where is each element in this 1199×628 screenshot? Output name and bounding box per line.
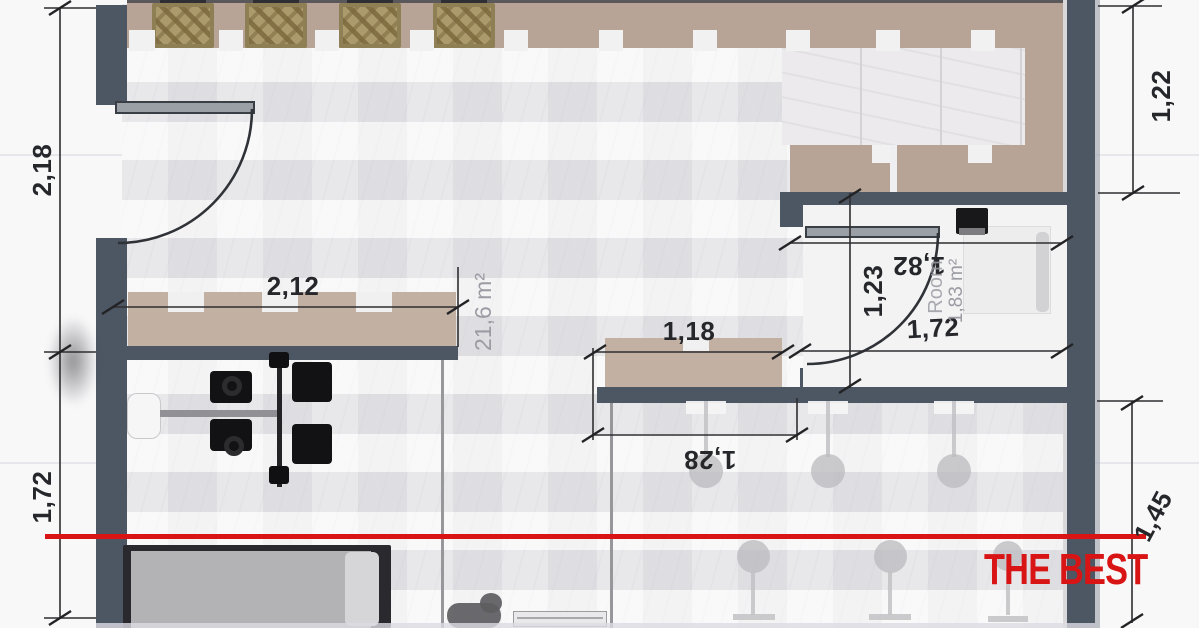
stool-stem: [888, 571, 892, 615]
bottom-floor-edge: [96, 623, 1095, 628]
chair-tab: [786, 30, 810, 51]
floor-plan: THE BEST 2,18 1,72 2,12 1,18 1,28 1,82 1…: [0, 0, 1199, 628]
stool-base: [733, 614, 775, 620]
weight-plate-block: [292, 424, 332, 464]
sideboard-back-wall: [122, 346, 458, 360]
terrace-chair-tab: [968, 145, 992, 163]
wall-shadow: [48, 316, 98, 406]
stool-seat: [737, 540, 770, 573]
wc-room-area-label: 1,83 m²: [942, 251, 972, 331]
terrace-bottom-wall: [780, 192, 1095, 205]
patterned-rug-chair: [245, 3, 307, 48]
dim-wc-height: 1,23: [858, 249, 888, 333]
left-wall-upper: [96, 5, 127, 105]
patterned-rug-chair: [339, 3, 401, 48]
barbell-end-cap: [269, 466, 289, 484]
stool-stem: [751, 571, 755, 615]
chair-tab: [129, 30, 155, 51]
stool-base: [988, 616, 1028, 622]
chair-tab: [410, 30, 434, 51]
dim-center-counter: 1,18: [647, 316, 731, 346]
stool-stem: [826, 401, 830, 457]
terrace-table-top: [782, 48, 1025, 145]
low-bench-rail: [517, 617, 603, 619]
bench-pad: [127, 393, 161, 439]
wc-door-leaf: [805, 226, 940, 238]
sideboard-notch: [356, 292, 392, 312]
watermark-text: THE BEST: [984, 545, 1147, 595]
wc-left-wall-stub: [780, 200, 803, 227]
dim-bar-opening: 1,28: [668, 445, 752, 475]
weight-ring: [224, 436, 244, 456]
glass-partition: [441, 360, 444, 628]
dim-left-counter: 2,12: [251, 271, 335, 301]
weight-plate-block: [292, 362, 332, 402]
bed-mattress: [131, 551, 371, 628]
chair-tab: [599, 30, 623, 51]
terrace-seam: [890, 145, 897, 193]
sideboard-notch: [168, 292, 204, 312]
stool-seat: [811, 454, 845, 488]
dim-left-lower: 1,72: [27, 455, 57, 539]
chair-tab: [876, 30, 900, 51]
chair-tab: [693, 30, 717, 51]
patterned-rug-chair: [433, 3, 495, 48]
patterned-rug-chair: [152, 3, 214, 48]
glass-partition: [610, 403, 613, 628]
stool-seat: [874, 540, 907, 573]
floor-object-head: [480, 593, 502, 613]
bed-pillow: [345, 552, 379, 626]
red-annotation-line: [45, 534, 1146, 539]
dim-left-upper: 2,18: [27, 128, 57, 212]
wall-sink-detail: [959, 228, 985, 235]
chair-tab: [315, 30, 339, 51]
stool-stem: [952, 401, 956, 457]
barbell-end-cap: [269, 352, 289, 368]
dim-right-upper: 1,22: [1146, 54, 1176, 138]
wall-panel: [1036, 232, 1049, 312]
bench-rail: [160, 410, 282, 417]
chair-tab: [971, 30, 995, 51]
dim-right-lower: 1,45: [1120, 472, 1186, 560]
stool-seat: [937, 454, 971, 488]
entry-door-leaf: [115, 101, 255, 114]
chair-tab: [504, 30, 528, 51]
weight-ring: [222, 376, 242, 396]
stool-base: [869, 614, 911, 620]
chair-tab: [219, 30, 243, 51]
main-room-area-label: 21,6 m²: [468, 267, 498, 357]
